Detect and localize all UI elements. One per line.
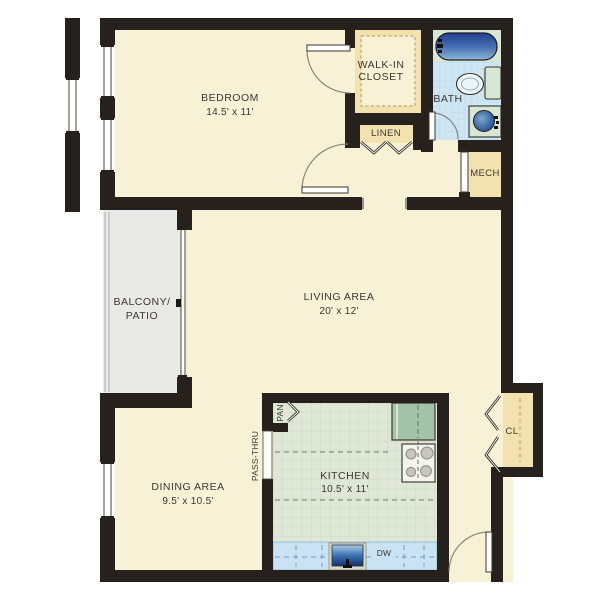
faucet-icon xyxy=(437,44,443,48)
stove-fixture xyxy=(402,444,435,482)
wall-segment xyxy=(533,383,543,477)
wall-segment xyxy=(100,18,513,30)
wall-segment xyxy=(273,423,288,432)
mech-door xyxy=(461,152,468,192)
wall-segment xyxy=(100,393,192,408)
wall-segment xyxy=(459,192,470,197)
tub-fixture xyxy=(436,33,497,60)
wall-segment xyxy=(459,147,470,152)
wall-segment xyxy=(100,570,449,582)
faucet-icon xyxy=(494,116,498,119)
adjacent-window xyxy=(65,77,80,134)
pass-thru-opening xyxy=(263,431,272,479)
bedroom-window xyxy=(100,117,115,173)
wall-segment xyxy=(262,393,449,403)
burner-icon xyxy=(406,449,416,459)
wall-segment xyxy=(262,484,273,582)
kitchen-label: KITCHEN xyxy=(320,470,370,482)
dining-window xyxy=(100,461,115,519)
kitchen-dims: 10.5' x 11' xyxy=(321,484,369,495)
balcony-label: BALCONY/ xyxy=(113,296,170,308)
kitchen-counter: DW xyxy=(273,542,437,570)
dishwasher-label: DW xyxy=(377,548,392,558)
pantry-label: PAN xyxy=(275,404,285,421)
bedroom-dims: 14.5' x 11' xyxy=(206,107,254,118)
wall-segment xyxy=(491,467,503,582)
bedroom-label: BEDROOM xyxy=(201,92,259,104)
wall-segment xyxy=(262,426,273,431)
pass-thru-label: PASS-THRU xyxy=(250,431,260,481)
balcony-label: PATIO xyxy=(126,310,158,322)
entry-closet-label: CL xyxy=(506,426,519,437)
wall-segment xyxy=(262,403,273,426)
vanity-sink-fixture xyxy=(469,106,501,137)
burner-icon xyxy=(406,467,415,476)
dining-area-label: DINING AREA xyxy=(151,481,224,493)
floor-plan-page: DW xyxy=(0,0,600,600)
living-area-label: LIVING AREA xyxy=(304,291,375,303)
mech-label: MECH xyxy=(470,168,500,179)
linen-label: LINEN xyxy=(371,128,401,139)
kitchen-sink-fixture xyxy=(329,543,366,570)
dining-area-dims: 9.5' x 10.5' xyxy=(162,496,213,507)
refrigerator-fixture xyxy=(392,403,435,440)
living-area-dims: 20' x 12' xyxy=(319,306,358,317)
wall-segment xyxy=(345,113,433,125)
wall-segment xyxy=(262,479,273,484)
wall-segment xyxy=(437,393,449,582)
bath-label: BATH xyxy=(433,93,462,105)
exterior-gap xyxy=(96,210,103,393)
faucet-icon xyxy=(494,126,498,129)
wall-segment xyxy=(501,467,543,477)
faucet-icon xyxy=(438,39,442,42)
faucet-icon xyxy=(438,50,442,53)
faucet-icon xyxy=(496,121,499,124)
floor-plan: DW xyxy=(0,0,600,600)
wall-segment xyxy=(100,197,362,210)
burner-icon xyxy=(421,466,432,477)
faucet-icon xyxy=(343,565,352,568)
door-handle-icon xyxy=(176,299,181,307)
wall-segment xyxy=(407,197,513,210)
walkin-closet-label: WALK-IN xyxy=(358,59,405,71)
walkin-closet-label: CLOSET xyxy=(358,71,403,83)
bedroom-window xyxy=(100,44,115,99)
burner-icon xyxy=(421,447,433,459)
wall-segment xyxy=(345,93,355,113)
